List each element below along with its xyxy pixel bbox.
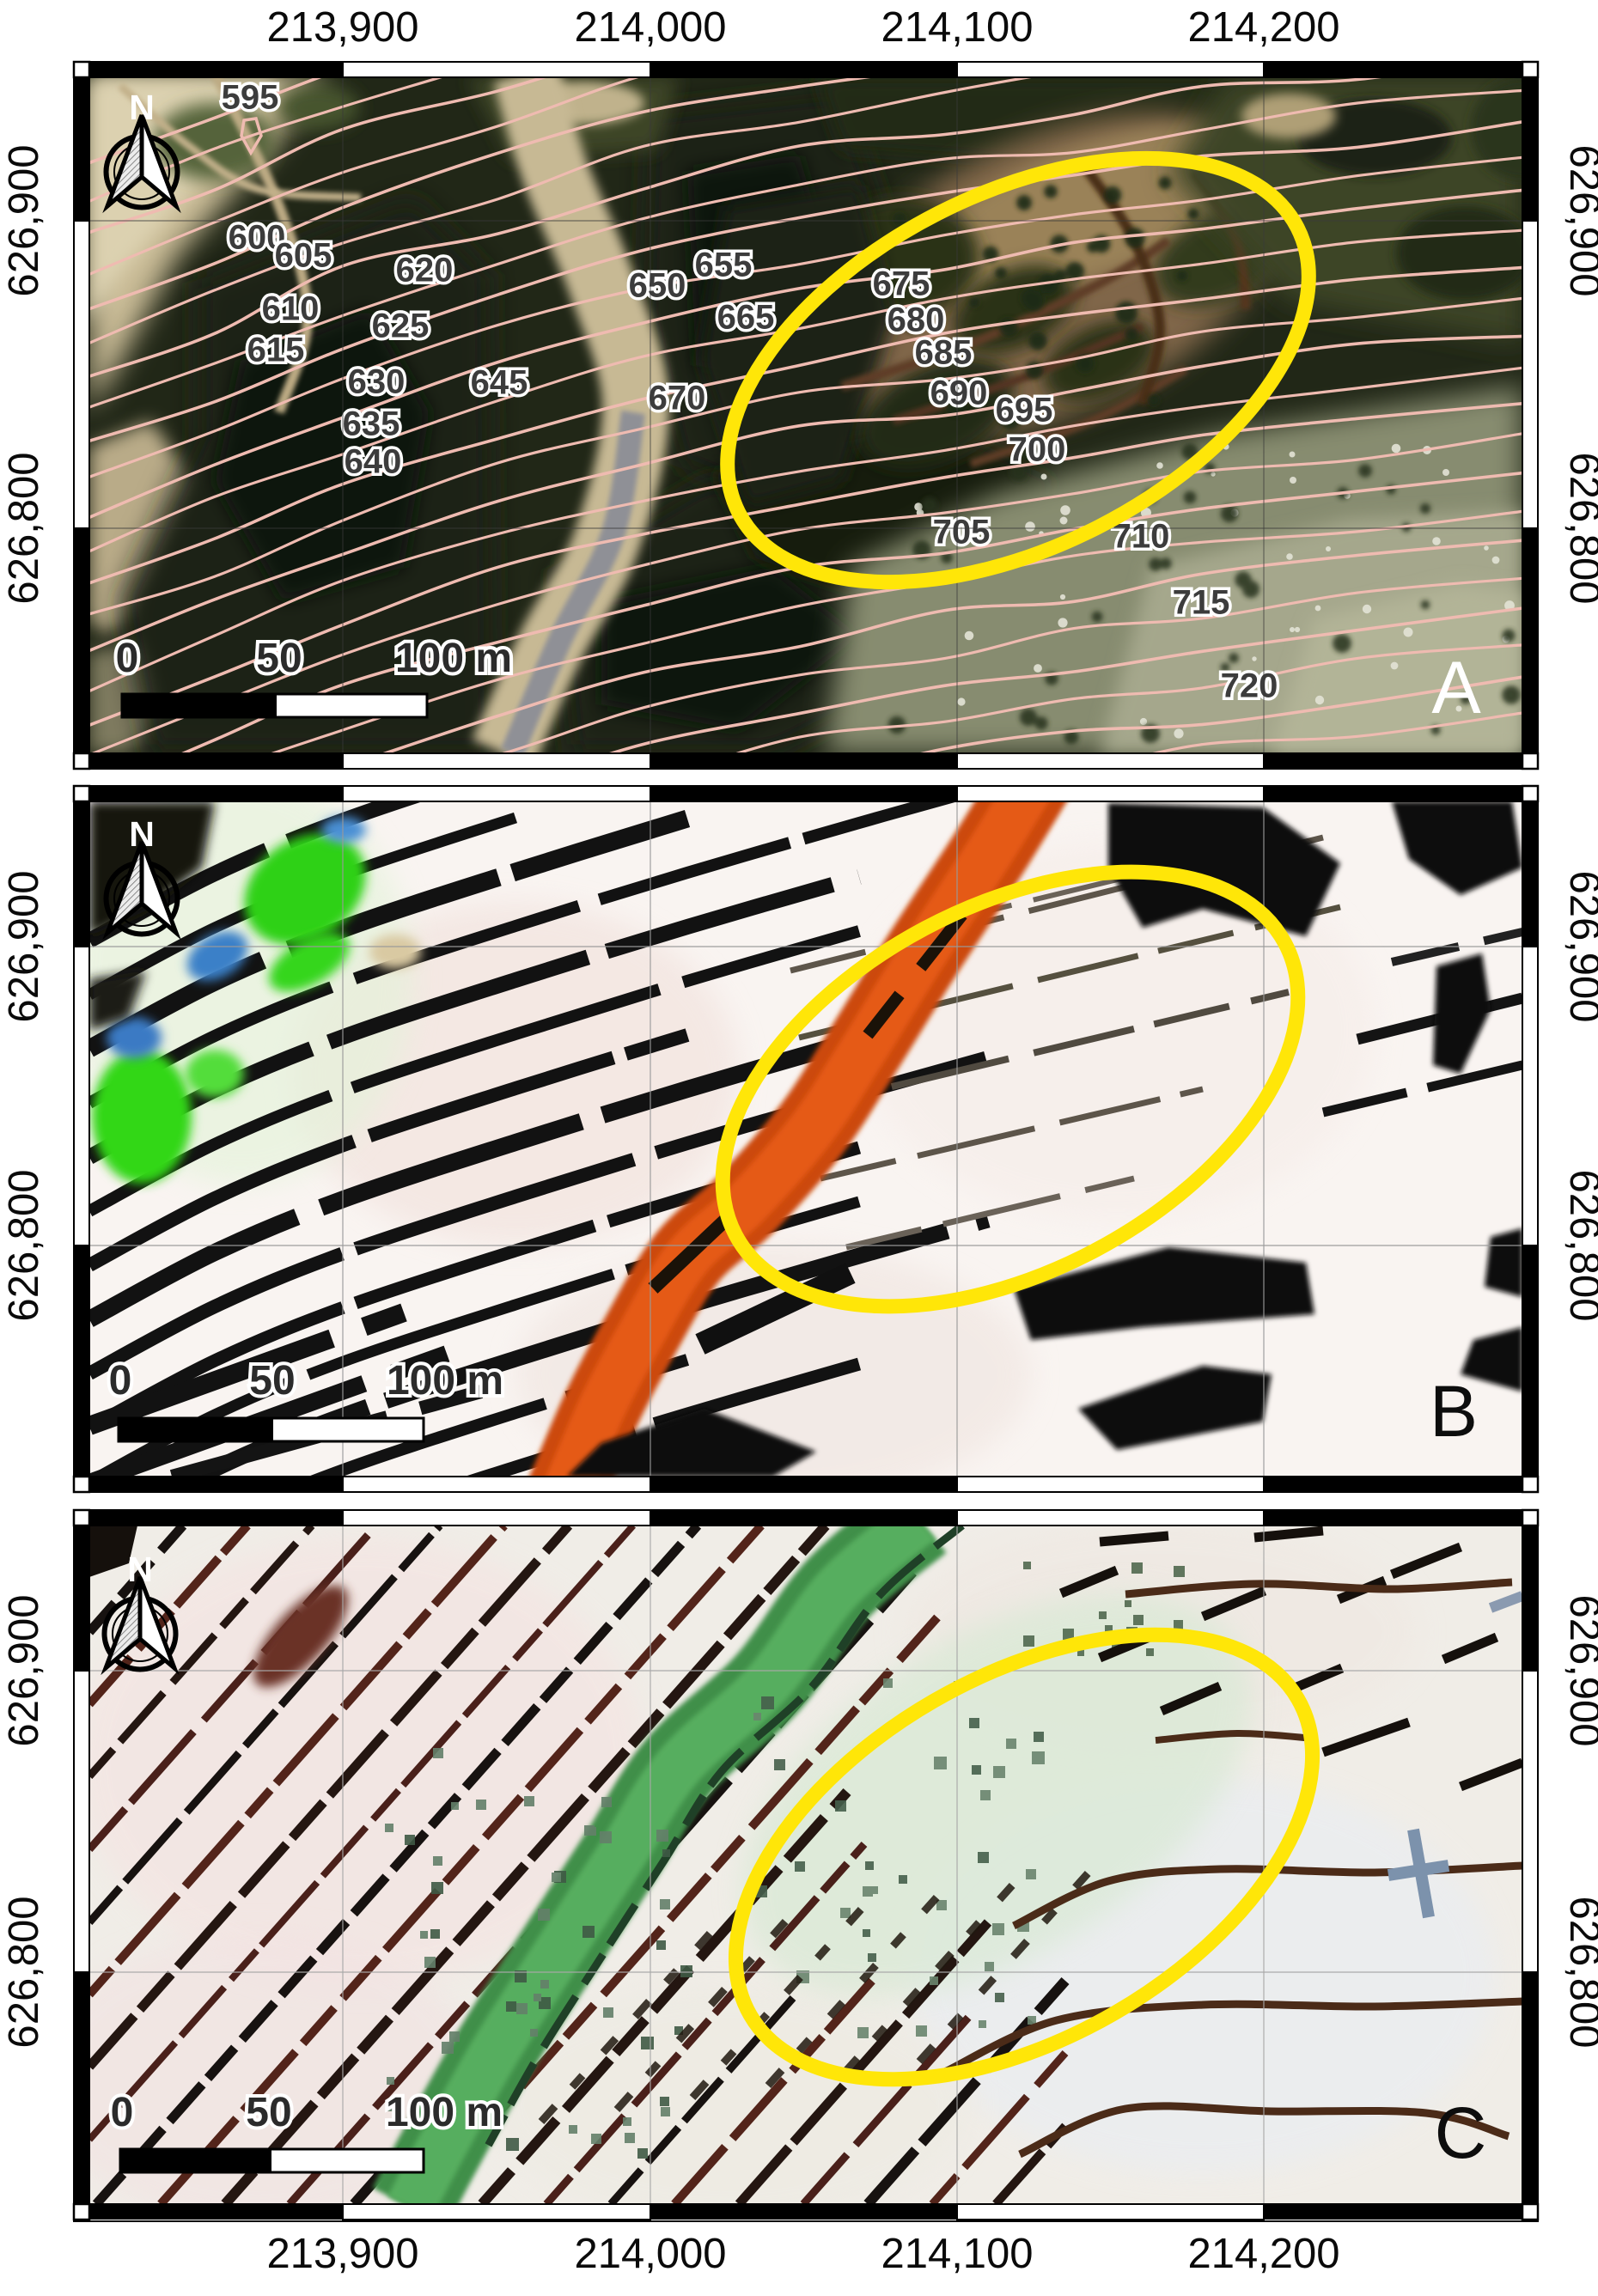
svg-text:620: 620 (396, 252, 454, 289)
svg-text:626,800: 626,800 (1561, 1896, 1598, 2048)
svg-text:655: 655 (695, 247, 753, 284)
svg-text:670: 670 (649, 380, 706, 417)
svg-text:214,000: 214,000 (574, 4, 726, 51)
svg-text:626,800: 626,800 (1561, 1169, 1598, 1321)
svg-text:675: 675 (873, 265, 930, 303)
svg-text:N: N (129, 814, 155, 854)
svg-text:626,800: 626,800 (1561, 452, 1598, 604)
svg-text:213,900: 213,900 (266, 4, 418, 51)
svg-text:645: 645 (471, 364, 528, 402)
svg-text:214,000: 214,000 (574, 2231, 726, 2277)
svg-text:690: 690 (930, 375, 988, 412)
svg-text:605: 605 (275, 237, 332, 275)
svg-text:625: 625 (372, 308, 430, 345)
svg-text:640: 640 (345, 443, 402, 481)
svg-text:700: 700 (1009, 431, 1066, 469)
svg-text:N: N (129, 88, 155, 127)
svg-text:0: 0 (116, 636, 139, 681)
svg-text:615: 615 (247, 332, 305, 369)
svg-text:214,200: 214,200 (1187, 4, 1339, 51)
svg-text:100 m: 100 m (387, 1358, 503, 1404)
svg-text:595: 595 (222, 79, 279, 117)
svg-text:610: 610 (262, 290, 320, 328)
svg-text:B: B (1430, 1371, 1478, 1452)
svg-text:626,900: 626,900 (1561, 1594, 1598, 1746)
svg-text:213,900: 213,900 (266, 2231, 418, 2277)
svg-text:630: 630 (348, 363, 406, 401)
svg-text:100 m: 100 m (386, 2090, 503, 2135)
svg-text:214,200: 214,200 (1187, 2231, 1339, 2277)
svg-text:626,900: 626,900 (1561, 870, 1598, 1022)
svg-text:626,900: 626,900 (1, 1594, 47, 1746)
svg-text:214,100: 214,100 (881, 4, 1033, 51)
svg-text:50: 50 (256, 636, 302, 681)
svg-text:626,900: 626,900 (1, 144, 47, 296)
svg-text:50: 50 (246, 2090, 291, 2135)
svg-text:A: A (1431, 647, 1481, 729)
svg-text:626,900: 626,900 (1, 870, 47, 1022)
svg-text:695: 695 (996, 392, 1053, 429)
svg-text:C: C (1435, 2092, 1487, 2173)
svg-text:626,800: 626,800 (1, 452, 47, 604)
svg-text:626,800: 626,800 (1, 1169, 47, 1321)
svg-text:N: N (127, 1550, 153, 1589)
svg-text:635: 635 (343, 405, 400, 443)
svg-text:626,900: 626,900 (1561, 144, 1598, 296)
svg-text:665: 665 (717, 299, 775, 337)
svg-text:705: 705 (933, 514, 991, 551)
svg-text:0: 0 (111, 2090, 134, 2135)
svg-text:650: 650 (629, 267, 686, 305)
svg-text:685: 685 (915, 334, 973, 372)
svg-text:715: 715 (1173, 584, 1230, 622)
svg-text:626,800: 626,800 (1, 1896, 47, 2048)
svg-text:50: 50 (249, 1358, 295, 1404)
svg-text:100 m: 100 m (395, 636, 512, 681)
svg-text:720: 720 (1221, 667, 1278, 705)
svg-text:0: 0 (109, 1358, 132, 1404)
svg-text:214,100: 214,100 (881, 2231, 1033, 2277)
svg-text:710: 710 (1113, 518, 1170, 556)
